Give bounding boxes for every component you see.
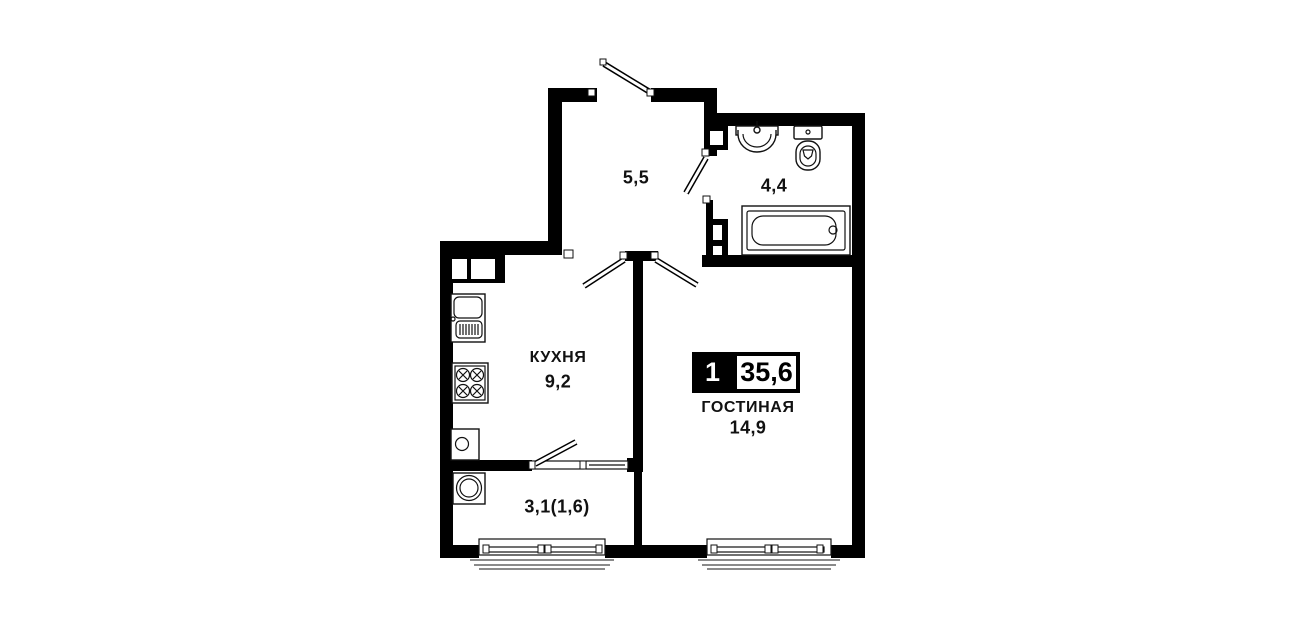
- room-count-badge: 1: [692, 352, 733, 393]
- toilet: [794, 126, 822, 170]
- kitchen-name-label: КУХНЯ: [530, 349, 587, 367]
- balcony-area-label: 3,1(1,6): [524, 497, 589, 518]
- kitchen-bottom-window: [470, 539, 614, 570]
- bathroom-sink: [736, 121, 778, 152]
- kitchen-sink: [451, 294, 485, 342]
- floorplan-drawing: [0, 0, 1301, 630]
- hallway-area-label: 5,5: [623, 168, 649, 189]
- vent-block: [447, 255, 505, 283]
- total-area-badge: 35,6: [733, 352, 800, 393]
- stove: [452, 363, 488, 403]
- water-heater: [451, 429, 479, 460]
- duct-niche: [705, 126, 728, 150]
- living-room-door: [656, 260, 697, 285]
- vent-shaft: [706, 200, 728, 255]
- bathtub: [742, 206, 850, 255]
- entrance-door: [604, 64, 650, 92]
- living-room-bottom-window: [698, 539, 840, 570]
- balcony-door: [532, 442, 584, 469]
- living-room-name-label: ГОСТИНАЯ: [701, 399, 794, 417]
- kitchen-area-label: 9,2: [545, 372, 571, 393]
- living-room-area-label: 14,9: [730, 418, 767, 439]
- bathroom-area-label: 4,4: [761, 176, 787, 197]
- summary-badge: 1 35,6: [692, 352, 800, 393]
- washing-machine: [453, 473, 485, 504]
- floorplan-canvas: 5,5 4,4 КУХНЯ 9,2 ГОСТИНАЯ 14,9 3,1(1,6)…: [0, 0, 1301, 630]
- bathroom-door: [686, 158, 706, 193]
- kitchen-door: [584, 260, 624, 286]
